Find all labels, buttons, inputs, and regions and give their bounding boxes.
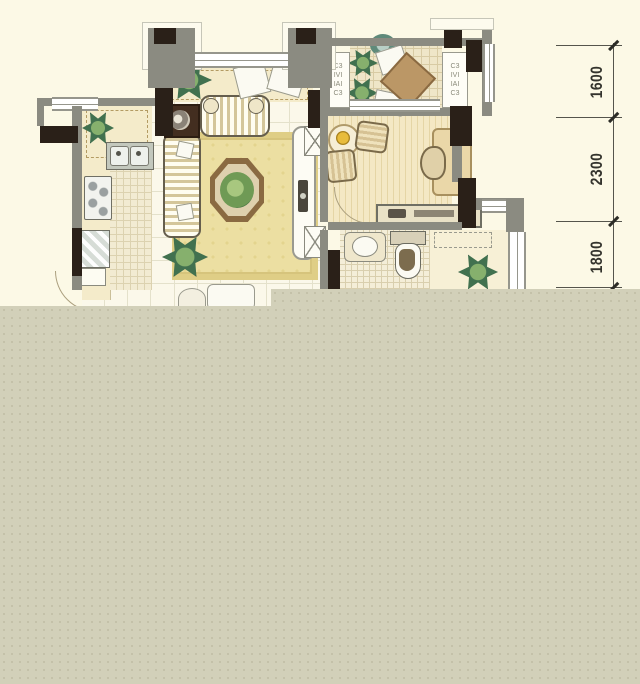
sofa-cushion <box>176 141 195 160</box>
structural-column <box>458 178 476 228</box>
wall-segment <box>452 146 462 182</box>
wall-segment <box>506 198 524 232</box>
gold-plate <box>336 131 350 145</box>
ac-louver-mark: IAI <box>451 81 460 89</box>
structural-column <box>296 28 316 44</box>
loveseat-arm-right <box>248 98 264 114</box>
balcony-bedroom-window <box>350 99 440 112</box>
wall-segment <box>328 222 462 230</box>
kitchen-floor <box>110 170 152 290</box>
dimension-label-1600: 1600 <box>585 58 609 106</box>
sink-basin <box>130 146 149 166</box>
ac-louver-mark: IVI <box>451 72 460 80</box>
floor-plan-image: C3 IVI IAI C3 C3 IVI IAI C3 <box>0 0 640 684</box>
wall-segment <box>320 116 328 222</box>
truncation-cover-right <box>271 289 640 307</box>
structural-column <box>444 28 462 48</box>
rattan-chair <box>354 120 390 154</box>
utility-dashed-line <box>434 232 492 248</box>
faucet <box>116 151 121 156</box>
decor-bowl <box>170 110 190 130</box>
tv-lens <box>300 193 306 199</box>
ac-louver-mark: IAI <box>334 81 343 89</box>
truncation-cover-main <box>0 306 640 684</box>
wall-segment <box>322 38 330 116</box>
ac-louver-mark: C3 <box>334 90 343 98</box>
wall-segment <box>37 106 44 126</box>
structural-column <box>450 106 472 146</box>
bathroom-basin <box>352 236 378 257</box>
structural-column <box>72 228 82 276</box>
bay-window-glass <box>195 52 288 68</box>
ac-platform: C3 IVI IAI C3 <box>442 52 468 108</box>
wall-segment <box>72 276 82 290</box>
rattan-chair <box>324 149 357 184</box>
dimension-label-2300: 2300 <box>585 145 609 193</box>
dimension-extension-line <box>613 43 614 306</box>
refrigerator <box>80 230 110 268</box>
structural-column <box>466 40 482 72</box>
counter-item <box>388 209 406 218</box>
ac-louver-mark: IVI <box>334 72 343 80</box>
loveseat-arm-left <box>203 98 219 114</box>
coffee-table-plant <box>220 172 254 208</box>
structural-column <box>154 28 176 44</box>
sink-basin <box>110 146 129 166</box>
balcony-outline <box>430 18 494 30</box>
dimension-label-1800: 1800 <box>585 233 609 281</box>
faucet <box>136 151 141 156</box>
ac-louver-mark: C3 <box>451 90 460 98</box>
ac-louver-mark: C3 <box>451 63 460 71</box>
balcony-side-window <box>483 44 495 102</box>
structural-column <box>40 126 78 143</box>
wall-segment <box>72 106 82 228</box>
right-window-band <box>508 232 526 289</box>
structural-column <box>155 88 173 136</box>
office-chair <box>420 146 446 180</box>
counter-item <box>414 210 454 217</box>
toilet-seat <box>399 249 415 271</box>
stove <box>84 176 112 220</box>
sofa-cushion <box>176 203 195 222</box>
